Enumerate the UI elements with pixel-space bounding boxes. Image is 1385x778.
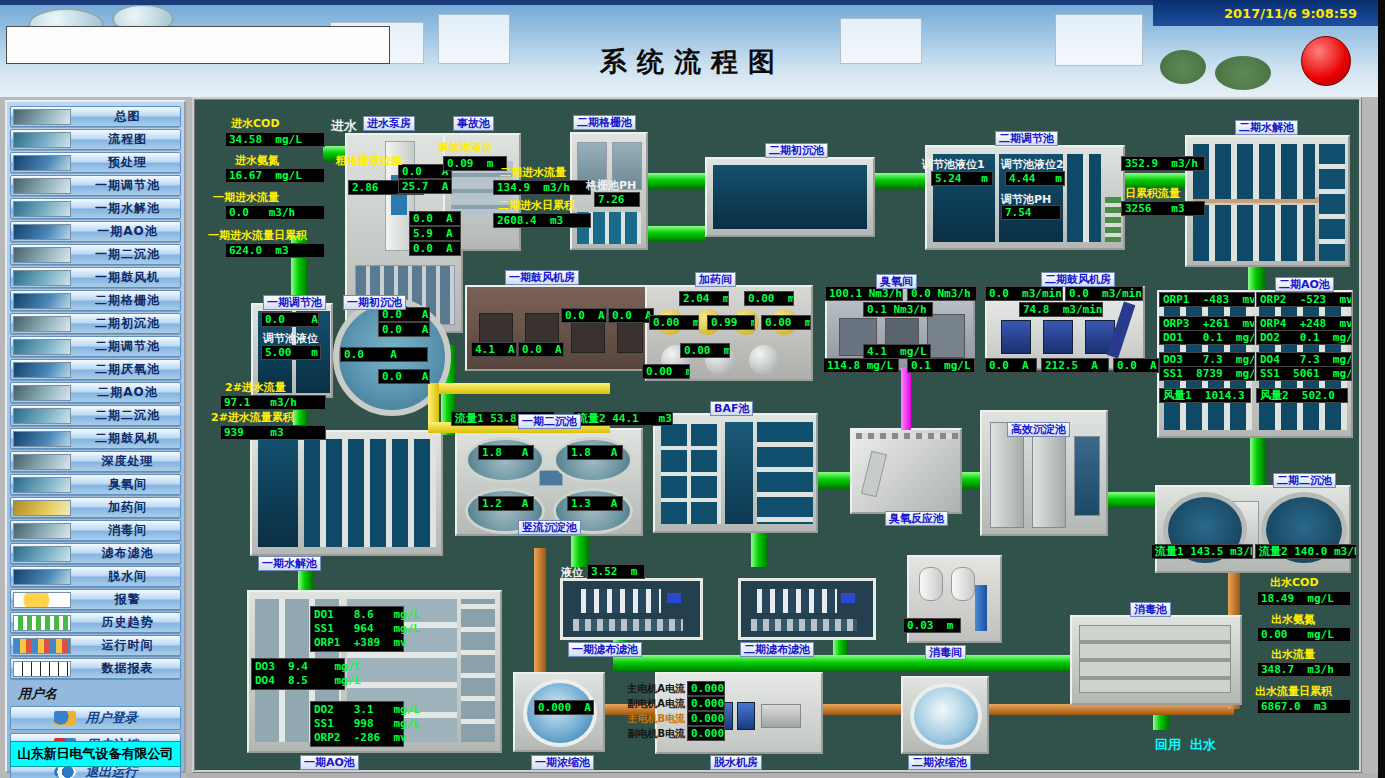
alarm-indicator[interactable]: [1301, 36, 1351, 86]
page-title: 系统流程图: [0, 44, 1385, 80]
p2-ao-value: SS1 8739 mg/L: [1159, 366, 1255, 381]
dosing-level: 0.00 m: [744, 291, 794, 306]
thumbnail-icon: [13, 661, 71, 677]
p2-blower-flow: 0.0 m3/min: [1065, 286, 1143, 301]
outlet-cod-value: 18.49 mg/L: [1257, 591, 1351, 606]
thumbnail-icon: [13, 431, 71, 447]
sidebar-item[interactable]: 一期水解池: [10, 198, 181, 219]
ozone-value: 114.8 mg/L: [823, 358, 899, 373]
sidebar-item[interactable]: 报警: [10, 589, 181, 610]
p2-thickener-label[interactable]: 二期浓缩池: [908, 755, 971, 770]
thumbnail-icon: [13, 500, 71, 516]
p1-primary-current: 0.0 A: [378, 322, 430, 337]
sidebar-item[interactable]: 二期格栅池: [10, 290, 181, 311]
p2-ao-value: 风量1 1014.3: [1159, 388, 1251, 403]
p1-sec-current: 1.8 A: [478, 445, 534, 460]
p1-ao-box1: DO1 8.6 mg/L SS1 964 mg/L ORP1 +389 mv: [310, 606, 404, 652]
p1-thickener-current: 0.000 A: [534, 700, 594, 715]
p1-reg-level-label: 调节池液位: [263, 331, 318, 346]
dewatering-label[interactable]: 脱水机房: [710, 755, 762, 770]
p2-ph-label: 调节池PH: [1001, 192, 1051, 207]
ozone-reactor-tank: [850, 428, 962, 514]
user-login-button[interactable]: 用户登录: [10, 706, 181, 730]
pump-current: 25.7 A: [398, 179, 452, 194]
orange-pipe: [987, 704, 1234, 715]
p2-level1-value: 5.24 m: [931, 171, 993, 186]
p1-primary-label[interactable]: 一期初沉池: [343, 295, 406, 310]
sidebar-item[interactable]: 历史趋势: [10, 612, 181, 633]
disinfect-level: 0.03 m: [903, 618, 961, 633]
sidebar-item[interactable]: 二期鼓风机: [10, 428, 181, 449]
user-login-icon: [54, 711, 76, 725]
pump-current: 0.0 A: [409, 211, 461, 226]
thumbnail-icon: [13, 293, 71, 309]
dosing-level: 0.00 m: [680, 343, 730, 358]
sidebar-item[interactable]: 数据报表: [10, 658, 181, 679]
inlet-acc-label: 一期进水流量日累积: [208, 230, 307, 242]
p2-ao-value: DO2 0.1 mg/L: [1256, 330, 1352, 345]
p1-sec-current: 1.2 A: [478, 496, 534, 511]
dewater-row-label: 主电机B电流: [619, 712, 685, 726]
thumbnail-icon: [13, 339, 71, 355]
dosing-level: 0.00 m: [642, 364, 690, 379]
p1-hydrolysis-tank: [250, 430, 443, 556]
p2-hydrolysis-tank: [1185, 135, 1350, 267]
magenta-ozone-pipe: [901, 368, 911, 430]
p1-sec-current: 1.8 A: [567, 445, 623, 460]
p1-filter-tank: [560, 578, 703, 640]
p2-inflow-value: 134.9 m3/h: [493, 180, 591, 195]
sidebar-item[interactable]: 一期调节池: [10, 175, 181, 196]
thumbnail-icon: [13, 201, 71, 217]
p1-filter-level: 3.52 m: [587, 564, 645, 579]
green-pipe: [1103, 492, 1160, 508]
p1-regulating-label[interactable]: 一期调节池: [263, 295, 326, 310]
p2-ao-value: 风量2 502.0: [1256, 388, 1348, 403]
company-label: 山东新日电气设备有限公司: [10, 741, 181, 767]
p1-blower-room: [465, 285, 651, 371]
p2-blower-flow: 0.0 m3/min: [985, 286, 1063, 301]
p1-hydrolysis-label[interactable]: 一期水解池: [258, 556, 321, 571]
p1-blower-current: 0.0 A: [608, 308, 654, 323]
outlet-flow-label: 出水流量: [1271, 649, 1315, 661]
pump-current: 0.0 A: [409, 241, 461, 256]
bottom-edge: [186, 773, 1378, 778]
p2-blower-current: 0.0 A: [1113, 358, 1159, 373]
inflow2-acc-label: 2#进水流量累积: [211, 412, 294, 424]
p1-ao-box2: DO3 9.4 mg/L DO4 8.5 mg/L: [251, 658, 345, 690]
p2-ao-value: DO4 7.3 mg/L: [1256, 352, 1352, 367]
thumbnail-icon: [13, 178, 71, 194]
p2-ph-value: 7.54: [1001, 205, 1061, 220]
sidebar-item[interactable]: 运行时间: [10, 635, 181, 656]
sidebar-item[interactable]: 流程图: [10, 129, 181, 150]
p2-ao-value: ORP4 +248 mv: [1256, 316, 1352, 331]
pump-house-label[interactable]: 进水泵房: [363, 116, 415, 131]
p2-filter-tank: [738, 578, 876, 640]
thumbnail-icon: [13, 155, 71, 171]
p1-blower-current: 4.1 A: [471, 342, 517, 357]
header-banner: 2017/11/6 9:08:59 系统流程图: [0, 0, 1385, 97]
inflow2-acc-value: 939 m3: [220, 425, 326, 440]
coarse-screen-level-label: 粗格栅液位差: [336, 155, 402, 167]
sidebar-item[interactable]: 一期二沉池: [10, 244, 181, 265]
outlet-acc-value: 6867.0 m3: [1257, 699, 1351, 714]
dewater-row-value: 0.000: [687, 681, 725, 696]
p2-level2-label: 调节池液位2: [1001, 157, 1064, 172]
p1-primary-current: 0.0 A: [378, 369, 430, 384]
thumbnail-icon: [13, 109, 71, 125]
sidebar-item[interactable]: 二期AO池: [10, 382, 181, 403]
sidebar-item[interactable]: 消毒间: [10, 520, 181, 541]
thumbnail-icon: [13, 546, 71, 562]
inflow2-value: 97.1 m3/h: [220, 395, 326, 410]
ozone-value: 0.1 mg/L: [907, 358, 975, 373]
sidebar-item[interactable]: 臭氧间: [10, 474, 181, 495]
disinfect-tank: [1070, 615, 1242, 705]
disinfect-room-label[interactable]: 消毒间: [925, 645, 966, 660]
outlet-nh3-value: 0.00 mg/L: [1257, 627, 1351, 642]
p2-sec-flow1: 流量1 143.5 m3/h: [1151, 544, 1253, 559]
outlet-acc-label: 出水流量日累积: [1255, 686, 1332, 698]
sidebar-item[interactable]: 一期AO池: [10, 221, 181, 242]
p1-reg-level: 5.00 m: [261, 345, 321, 360]
sidebar-item[interactable]: 加药间: [10, 497, 181, 518]
ozone-value: 4.1 mg/L: [863, 344, 931, 359]
hes-label[interactable]: 高效沉淀池: [1007, 422, 1070, 437]
p2-blower-label[interactable]: 二期鼓风机房: [1041, 272, 1115, 287]
dewater-row-label: 副电机B电流: [619, 727, 685, 741]
p2-thickener: [901, 676, 989, 754]
p2-ao-value: DO3 7.3 mg/L: [1159, 352, 1255, 367]
yellow-dosing-pipe: [428, 383, 610, 394]
sidebar-item[interactable]: 一期鼓风机: [10, 267, 181, 288]
p2-ao-value: ORP1 -483 mv: [1159, 292, 1255, 307]
thumbnail-icon: [13, 408, 71, 424]
grille-ph-label: 格栅池PH: [586, 178, 636, 193]
username-label: 用户名: [18, 685, 181, 703]
p1-secondary-label[interactable]: 一期二沉池: [518, 414, 581, 429]
p1-primary-current: 0.0 A: [340, 347, 428, 362]
dewater-row-label: 副电机A电流: [619, 697, 685, 711]
dosing-level: 2.04 m: [679, 291, 729, 306]
p1-thickener-label[interactable]: 一期浓缩池: [531, 755, 594, 770]
ozone-value: 0.1 Nm3/h: [863, 302, 933, 317]
green-pipe: [646, 173, 705, 189]
p2-hyd-acc-label: 日累积流量: [1125, 188, 1180, 200]
p2-blower-current: 0.0 A: [985, 358, 1037, 373]
p2-ao-value: ORP2 -523 mv: [1256, 292, 1352, 307]
p2-secondary-label[interactable]: 二期二沉池: [1273, 473, 1336, 488]
orange-pipe: [821, 704, 905, 715]
p2-filter-label[interactable]: 二期滤布滤池: [740, 642, 814, 657]
dewater-row-value: 0.000: [687, 696, 725, 711]
p1-blower-current: 0.0 A: [518, 342, 564, 357]
p2-ao-label[interactable]: 二期AO池: [1275, 277, 1334, 292]
accident-level: 0.09 m: [443, 156, 507, 171]
p1-sec-current: 1.3 A: [567, 496, 623, 511]
accident-level-label: 事故池液位: [438, 142, 493, 154]
outlet-cod-label: 出水COD: [1270, 577, 1319, 589]
p1-filter-label[interactable]: 一期滤布滤池: [568, 642, 642, 657]
thumbnail-icon: [13, 270, 71, 286]
inlet-cod-label: 进水COD: [231, 118, 280, 130]
p2-primary-label[interactable]: 二期初沉池: [765, 143, 828, 158]
sidebar-item[interactable]: 二期二沉池: [10, 405, 181, 426]
green-pipe: [818, 472, 853, 489]
baf-label[interactable]: BAF池: [710, 401, 753, 416]
sidebar-item[interactable]: 脱水间: [10, 566, 181, 587]
p2-grille-label[interactable]: 二期格栅池: [573, 115, 636, 130]
p2-regulating-label[interactable]: 二期调节池: [995, 131, 1058, 146]
ozone-room-label[interactable]: 臭氧间: [876, 274, 917, 289]
thumbnail-icon: [13, 362, 71, 378]
p2-inflow-label: 二期进水流量: [500, 167, 566, 179]
thumbnail-icon: [13, 592, 71, 608]
dewater-row-value: 0.000: [687, 711, 725, 726]
p2-acc-label: 二期进水日累积: [498, 200, 575, 212]
grille-ph-value: 7.26: [594, 192, 640, 207]
process-canvas: 进水COD 34.58 mg/L 进水氨氮 16.67 mg/L 一期进水流量 …: [192, 97, 1362, 773]
p2-secondary-tank: [1155, 485, 1351, 573]
inlet-cod-value: 34.58 mg/L: [225, 132, 325, 147]
thumbnail-icon: [13, 454, 71, 470]
inlet-flow-label: 一期进水流量: [213, 192, 279, 204]
p1-ao-box3: DO2 3.1 mg/L SS1 998 mg/L ORP2 -286 mv: [310, 701, 404, 747]
thumbnail-icon: [13, 316, 71, 332]
thumbnail-icon: [13, 224, 71, 240]
disinfect-tank-label[interactable]: 消毒池: [1130, 602, 1171, 617]
dosing-room-label[interactable]: 加药间: [695, 272, 736, 287]
p2-blower-current: 212.5 A: [1041, 358, 1109, 373]
baf-tank: [653, 413, 818, 533]
orange-pipe: [534, 548, 546, 678]
p1-reg-current: 0.0 A: [261, 312, 319, 327]
p2-ao-value: SS1 5061 mg/L: [1256, 366, 1352, 381]
outlet-nh3-label: 出水氨氮: [1271, 614, 1315, 626]
sidebar-item[interactable]: 二期初沉池: [10, 313, 181, 334]
p2-primary-tank: [705, 157, 875, 237]
dosing-level: 0.99 m: [707, 315, 755, 330]
sidebar: 总图 流程图 预处理 一期调节池 一期水解池 一期AO池 一期二沉池 一期鼓风机…: [5, 100, 186, 773]
thumbnail-icon: [13, 477, 71, 493]
p2-ao-value: DO1 0.1 mg/L: [1159, 330, 1255, 345]
green-pipe: [571, 533, 589, 567]
ozone-reactor-label[interactable]: 臭氧反应池: [885, 511, 948, 526]
inlet-nh3-label: 进水氨氮: [235, 155, 279, 167]
p2-hyd-flow-value: 352.9 m3/h: [1121, 156, 1205, 171]
sidebar-item[interactable]: 深度处理: [10, 451, 181, 472]
thumbnail-icon: [13, 569, 71, 585]
p2-level2-value: 4.44 m: [1005, 171, 1065, 186]
thumbnail-icon: [13, 615, 71, 631]
p2-sec-flow2: 流量2 140.0 m3/h: [1255, 544, 1357, 559]
inlet-flow-value: 0.0 m3/h: [225, 205, 325, 220]
thumbnail-icon: [13, 638, 71, 654]
sidebar-item[interactable]: 滤布滤池: [10, 543, 181, 564]
dewater-row-value: 0.000: [687, 726, 725, 741]
green-pipe: [875, 173, 925, 189]
thumbnail-icon: [13, 385, 71, 401]
p2-acc-value: 2608.4 m3: [493, 213, 591, 228]
sidebar-item[interactable]: 二期厌氧池: [10, 359, 181, 380]
accident-tank-label[interactable]: 事故池: [453, 116, 494, 131]
sidebar-item[interactable]: 预处理: [10, 152, 181, 173]
p1-blower-current: 0.0 A: [561, 308, 607, 323]
p1-sec-flow2: 流量2 44.1 m3/h: [573, 411, 673, 426]
dosing-level: 0.00 m: [761, 315, 811, 330]
inflow2-label: 2#进水流量: [225, 382, 286, 394]
datetime: 2017/11/6 9:08:59: [1224, 6, 1357, 21]
inlet-acc-value: 624.0 m3: [225, 243, 325, 258]
right-edge: [1378, 0, 1385, 778]
pump-current: 5.9 A: [409, 226, 461, 241]
green-pipe: [1250, 435, 1266, 492]
thumbnail-icon: [13, 523, 71, 539]
p2-blower-flow: 74.8 m3/min: [1019, 302, 1103, 317]
p1-sec-sublabel: 竖流沉淀池: [518, 520, 581, 535]
green-pipe: [613, 655, 1075, 672]
thumbnail-icon: [13, 247, 71, 263]
p1-blower-label[interactable]: 一期鼓风机房: [505, 270, 579, 285]
ozone-value: 0.0 Nm3/h: [907, 286, 977, 301]
p2-hydrolysis-label[interactable]: 二期水解池: [1235, 120, 1298, 135]
dosing-level: 0.00 m: [649, 315, 699, 330]
dewater-row-label: 主电机A电流: [619, 682, 685, 696]
green-pipe: [751, 533, 768, 567]
inflow-label: 进水: [331, 117, 357, 135]
p2-ao-value: ORP3 +261 mv: [1159, 316, 1255, 331]
p1-filter-level-label: 液位: [561, 565, 583, 580]
p2-hyd-acc-value: 3256 m3: [1121, 201, 1205, 216]
p1-ao-label[interactable]: 一期AO池: [300, 755, 359, 770]
inlet-nh3-value: 16.67 mg/L: [225, 168, 325, 183]
thumbnail-icon: [13, 132, 71, 148]
reuse-outfall-label: 回用 出水: [1155, 736, 1216, 754]
sidebar-item[interactable]: 总图: [10, 106, 181, 127]
sidebar-item[interactable]: 二期调节池: [10, 336, 181, 357]
outlet-flow-value: 348.7 m3/h: [1257, 662, 1351, 677]
p2-level1-label: 调节池液位1: [922, 157, 985, 172]
